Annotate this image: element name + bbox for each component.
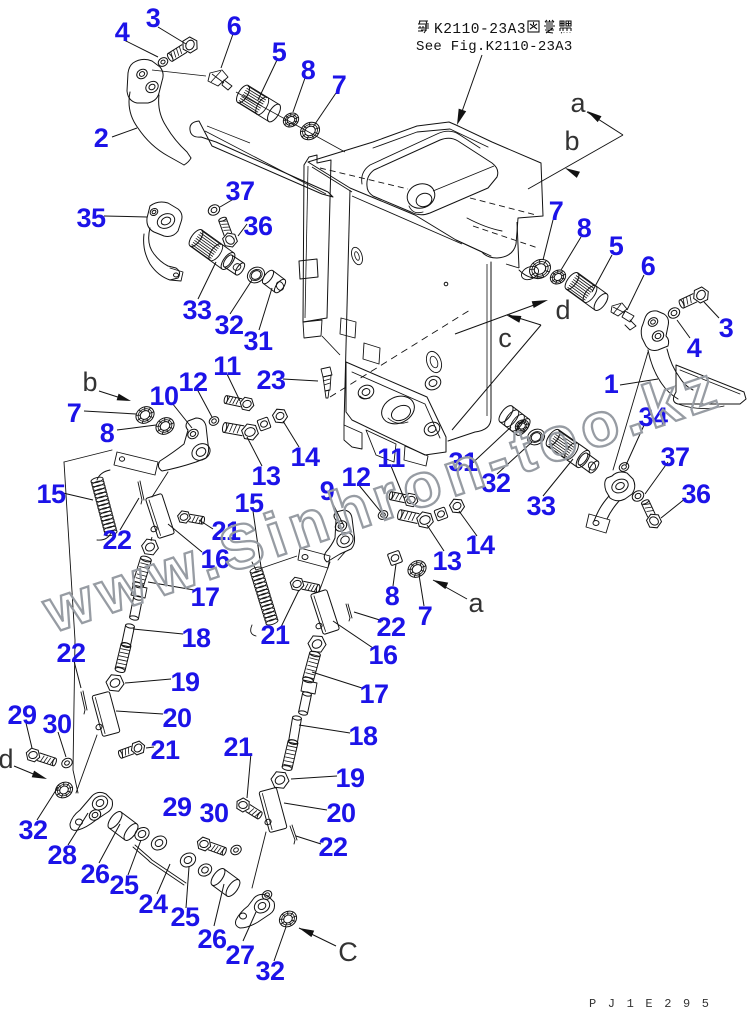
svg-text:8: 8 (100, 418, 115, 448)
svg-text:33: 33 (182, 295, 212, 325)
svg-text:32: 32 (214, 310, 243, 340)
svg-text:17: 17 (359, 679, 388, 709)
svg-text:19: 19 (170, 667, 200, 697)
svg-text:c: c (498, 323, 512, 353)
svg-text:C: C (338, 937, 358, 967)
svg-text:11: 11 (213, 351, 241, 381)
svg-text:18: 18 (181, 623, 211, 653)
svg-text:32: 32 (255, 956, 284, 986)
svg-text:28: 28 (47, 840, 77, 870)
svg-text:20: 20 (162, 703, 191, 733)
svg-text:33: 33 (526, 491, 556, 521)
svg-text:8: 8 (577, 213, 592, 243)
svg-text:7: 7 (67, 398, 82, 428)
svg-text:K2110-23A3: K2110-23A3 (434, 22, 526, 38)
svg-text:PJ1E295: PJ1E295 (589, 997, 721, 1011)
svg-text:26: 26 (197, 924, 227, 954)
svg-text:36: 36 (681, 479, 711, 509)
svg-text:20: 20 (326, 798, 355, 828)
svg-text:26: 26 (80, 859, 110, 889)
svg-text:5: 5 (272, 37, 287, 67)
svg-text:a: a (468, 588, 484, 618)
svg-text:18: 18 (348, 721, 378, 751)
svg-text:b: b (564, 126, 579, 156)
svg-text:d: d (0, 744, 14, 774)
svg-text:10: 10 (149, 381, 178, 411)
svg-text:7: 7 (332, 70, 347, 100)
svg-text:8: 8 (385, 581, 400, 611)
svg-text:25: 25 (109, 870, 139, 900)
svg-text:21: 21 (260, 620, 290, 650)
svg-text:14: 14 (465, 530, 495, 560)
svg-text:31: 31 (243, 326, 273, 356)
svg-text:d: d (555, 295, 570, 325)
svg-text:2: 2 (94, 123, 109, 153)
svg-text:36: 36 (243, 211, 273, 241)
svg-text:13: 13 (251, 461, 281, 491)
svg-text:32: 32 (18, 815, 47, 845)
svg-text:37: 37 (660, 442, 689, 472)
svg-text:7: 7 (418, 601, 433, 631)
svg-text:5: 5 (609, 231, 624, 261)
svg-text:15: 15 (36, 479, 66, 509)
svg-text:30: 30 (42, 709, 71, 739)
svg-text:29: 29 (7, 700, 37, 730)
svg-text:3: 3 (719, 313, 734, 343)
svg-text:14: 14 (290, 442, 320, 472)
svg-text:21: 21 (223, 732, 253, 762)
svg-text:23: 23 (256, 365, 286, 395)
svg-text:21: 21 (150, 735, 180, 765)
svg-text:3: 3 (146, 3, 161, 33)
svg-text:30: 30 (199, 798, 228, 828)
svg-text:37: 37 (225, 176, 254, 206)
svg-text:16: 16 (368, 640, 398, 670)
svg-text:4: 4 (115, 17, 130, 47)
svg-text:6: 6 (641, 251, 656, 281)
svg-text:13: 13 (432, 546, 462, 576)
svg-text:b: b (82, 367, 97, 397)
svg-text:22: 22 (376, 612, 405, 642)
svg-text:22: 22 (318, 832, 347, 862)
svg-text:29: 29 (162, 792, 192, 822)
svg-text:25: 25 (170, 902, 200, 932)
svg-text:27: 27 (225, 940, 254, 970)
svg-text:24: 24 (138, 889, 168, 919)
svg-text:12: 12 (178, 367, 207, 397)
svg-text:See Fig.K2110-23A3: See Fig.K2110-23A3 (416, 39, 573, 55)
svg-text:7: 7 (549, 196, 564, 226)
svg-text:19: 19 (335, 763, 365, 793)
svg-text:a: a (570, 88, 586, 118)
svg-text:6: 6 (227, 11, 242, 41)
svg-text:35: 35 (76, 203, 106, 233)
svg-text:8: 8 (301, 55, 316, 85)
